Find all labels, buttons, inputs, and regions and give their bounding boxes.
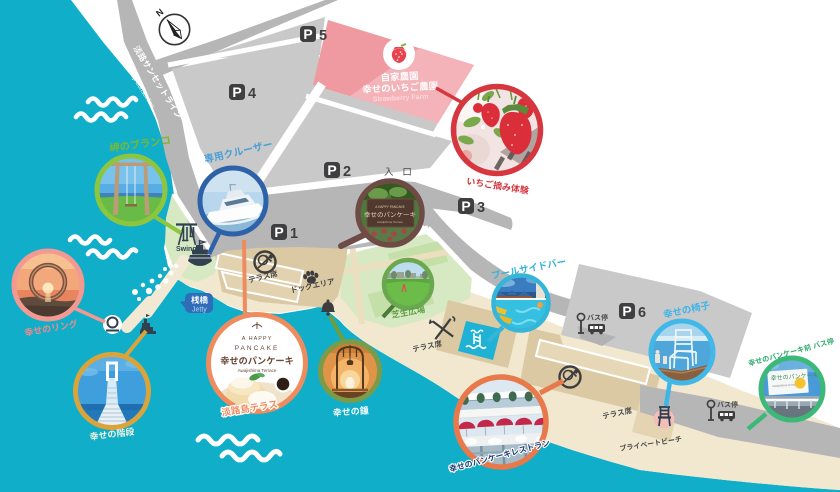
svg-text:P: P	[327, 162, 336, 178]
svg-text:P: P	[303, 26, 312, 42]
svg-text:6: 6	[638, 305, 646, 321]
svg-text:1: 1	[290, 226, 298, 242]
svg-text:P: P	[274, 224, 283, 240]
svg-text:P: P	[461, 198, 470, 214]
svg-text:A HAPPY PANCAKE: A HAPPY PANCAKE	[375, 205, 404, 209]
svg-text:2: 2	[343, 164, 351, 180]
svg-text:Awajishima Terrace: Awajishima Terrace	[238, 368, 277, 373]
svg-text:PANCAKE: PANCAKE	[235, 345, 280, 352]
svg-text:P: P	[232, 84, 241, 100]
svg-text:5: 5	[319, 28, 327, 44]
svg-text:4: 4	[248, 86, 256, 102]
svg-text:Jetty: Jetty	[192, 307, 207, 314]
svg-text:P: P	[622, 303, 631, 319]
svg-text:A HAPPY: A HAPPY	[242, 336, 273, 342]
svg-text:Awajishima Terrace: Awajishima Terrace	[377, 220, 403, 224]
svg-text:3: 3	[477, 200, 485, 216]
